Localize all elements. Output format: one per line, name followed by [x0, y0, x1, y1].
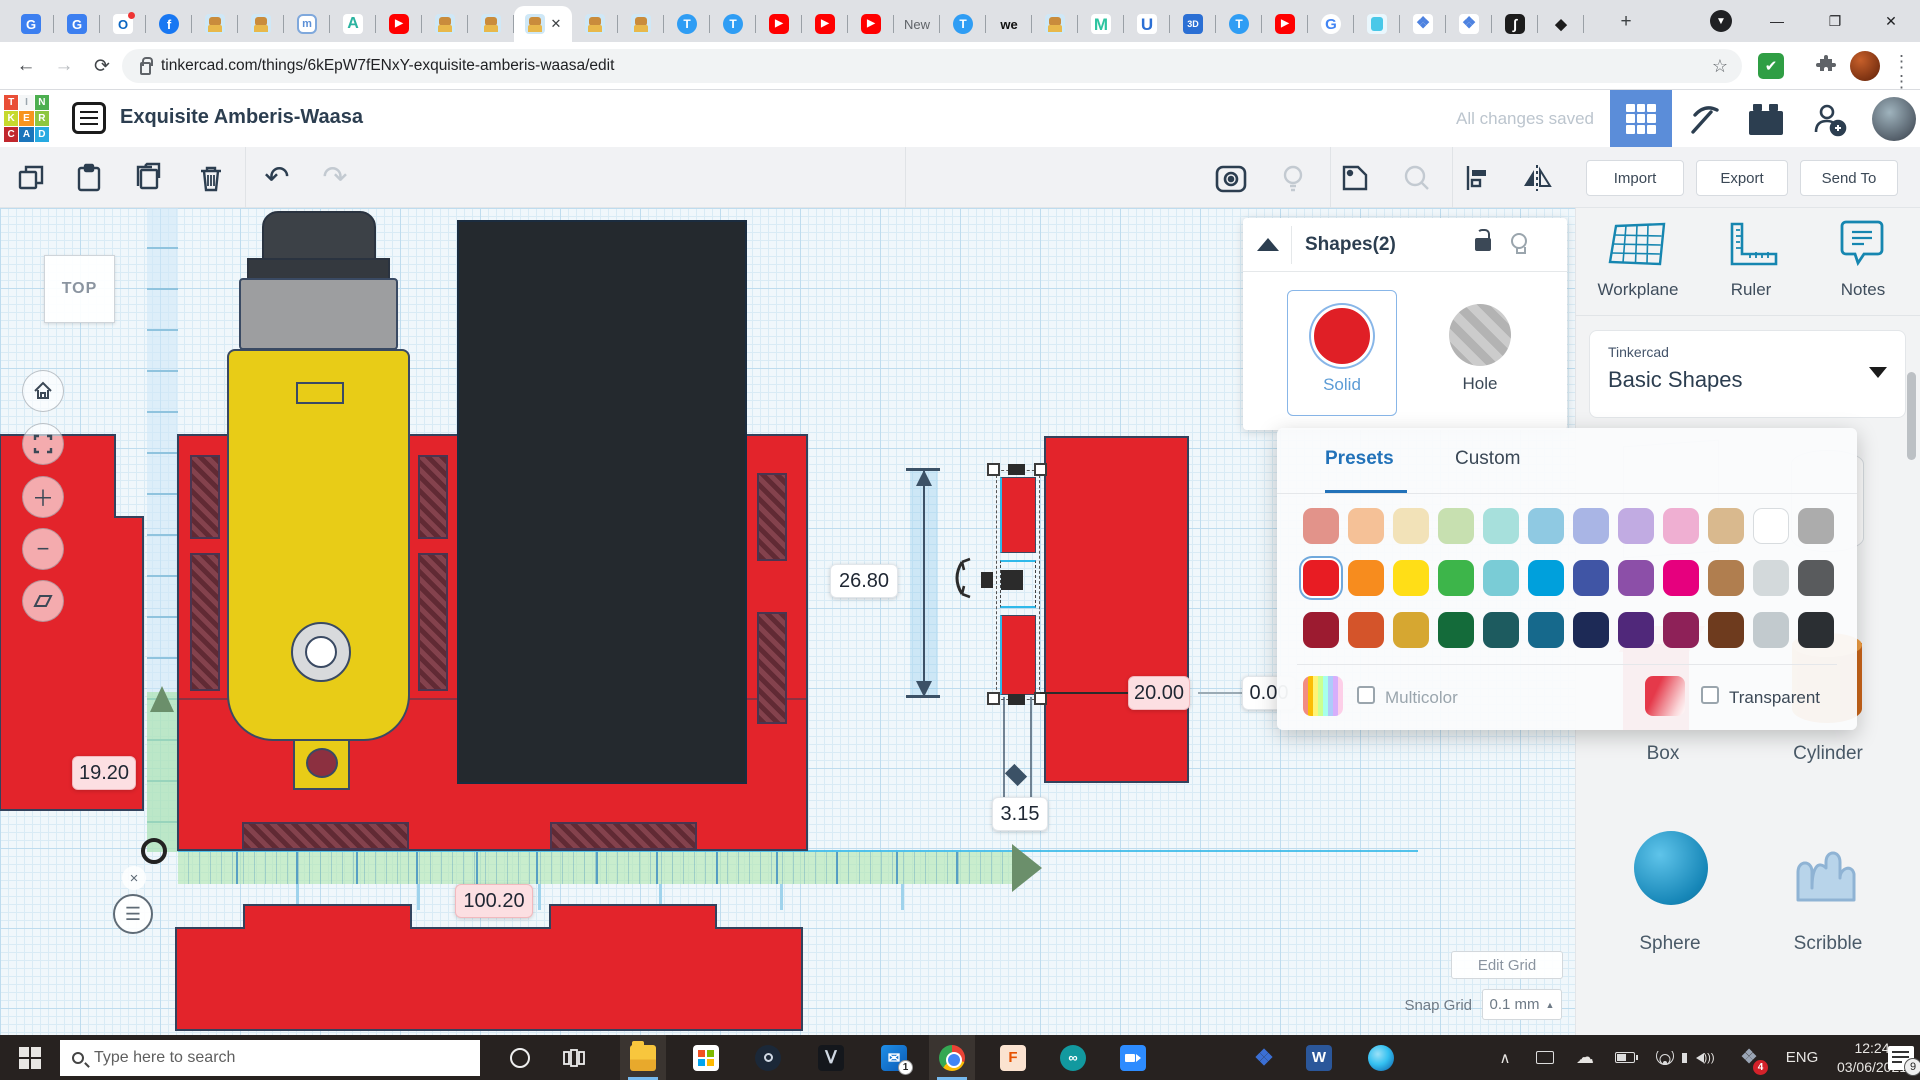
sendto-button[interactable]: Send To	[1800, 160, 1898, 196]
transparent-swatch[interactable]	[1645, 676, 1685, 716]
task-view-icon[interactable]	[552, 1035, 596, 1080]
word-icon[interactable]: W	[1296, 1035, 1342, 1080]
selection-handle-black[interactable]	[1008, 694, 1025, 705]
color-swatch[interactable]	[1573, 560, 1609, 596]
align-icon[interactable]	[1458, 159, 1496, 197]
lego-brick-icon[interactable]	[1735, 90, 1797, 147]
dim-cap	[906, 468, 940, 471]
windows-taskbar: Type here to search ᐯ ✉1 F ∞ ❖ W ∧ ☁ )))…	[0, 1035, 1920, 1080]
browser-tab[interactable]: G	[8, 6, 54, 42]
logo-letter: K	[4, 111, 18, 126]
window-minimize-button[interactable]: —	[1748, 0, 1806, 42]
view-cube[interactable]: TOP	[44, 255, 115, 323]
blocks-view-button[interactable]	[1610, 90, 1672, 147]
multicolor-swatch[interactable]	[1303, 676, 1343, 716]
language-indicator[interactable]: ENG	[1778, 1035, 1826, 1080]
zoom-in-icon[interactable]: ＋	[22, 476, 64, 518]
facebook-favicon: f	[159, 14, 179, 34]
browser-tab[interactable]: ∫	[1492, 6, 1538, 42]
dim-label-left[interactable]: 19.20	[72, 756, 136, 790]
u-favicon: U	[1137, 14, 1157, 34]
browser-tab[interactable]: m	[284, 6, 330, 42]
workplane-label[interactable]: Workplane	[1576, 280, 1700, 300]
mirror-icon[interactable]	[1518, 159, 1556, 197]
browser-tab[interactable]: A	[330, 6, 376, 42]
browser-tab[interactable]: M	[1078, 6, 1124, 42]
light-bulb-icon[interactable]	[1274, 159, 1312, 197]
edge-icon[interactable]	[1358, 1035, 1404, 1080]
url-text: tinkercad.com/things/6kEpW7fENxY-exquisi…	[161, 57, 614, 75]
video-app-icon[interactable]	[1110, 1035, 1156, 1080]
browser-tab[interactable]	[1032, 6, 1078, 42]
color-swatch[interactable]	[1348, 612, 1384, 648]
hide-icon[interactable]	[1511, 233, 1527, 249]
black-box-shape[interactable]	[457, 220, 747, 784]
browser-tab[interactable]	[572, 6, 618, 42]
color-swatch[interactable]	[1438, 612, 1474, 648]
browser-tab[interactable]	[192, 6, 238, 42]
vent-hole[interactable]	[550, 822, 697, 850]
notes-icon[interactable]	[1838, 218, 1886, 275]
search-icon	[72, 1052, 84, 1064]
browser-tab[interactable]	[468, 6, 514, 42]
window-close-button[interactable]: ✕	[1862, 0, 1920, 42]
ungroup-icon[interactable]	[1398, 159, 1436, 197]
browser-tab[interactable]: U	[1124, 6, 1170, 42]
tab-search-icon[interactable]: ▼	[1710, 10, 1732, 32]
color-swatch[interactable]	[1618, 508, 1654, 544]
cast-icon[interactable]	[1526, 1035, 1564, 1080]
bottle-ring-inner	[305, 636, 337, 668]
color-swatch[interactable]	[1708, 560, 1744, 596]
bookmark-star-icon[interactable]: ☆	[1712, 56, 1728, 77]
dim-line	[1040, 692, 1128, 694]
dim-line	[1198, 692, 1242, 694]
fusion360-icon[interactable]: F	[990, 1035, 1036, 1080]
browser-tab-strip: GGOfmA▶✕TT▶▶▶NewTweMU3DT▶G❖❖∫◆ + ▼ — ❐ ✕	[0, 0, 1920, 42]
transparent-checkbox[interactable]	[1701, 686, 1719, 704]
tinkercad-logo[interactable]: TINKERCAD	[4, 95, 49, 142]
notes-label[interactable]: Notes	[1808, 280, 1918, 300]
youtube-favicon: ▶	[389, 14, 409, 34]
extension-check-icon[interactable]: ✔	[1758, 53, 1784, 79]
home-view-icon[interactable]	[22, 370, 64, 412]
chrome-icon[interactable]	[929, 1035, 975, 1080]
selection-handle-black[interactable]	[1008, 464, 1025, 475]
import-button[interactable]: Import	[1586, 160, 1684, 196]
robot-favicon	[205, 14, 225, 34]
color-swatch[interactable]	[1393, 612, 1429, 648]
color-swatch[interactable]	[1348, 508, 1384, 544]
book-favicon: ❖	[1413, 14, 1433, 34]
color-picker-panel: Presets Custom Multicolor Transparent	[1277, 428, 1857, 730]
export-button[interactable]: Export	[1696, 160, 1788, 196]
solid-color-ball[interactable]	[1311, 305, 1373, 367]
gallery-box-label[interactable]: Box	[1593, 743, 1733, 765]
browser-tab[interactable]: 3D	[1170, 6, 1216, 42]
color-swatch[interactable]	[1663, 508, 1699, 544]
ruler-close-icon[interactable]: ×	[122, 866, 146, 890]
gallery-scribble-icon[interactable]	[1788, 838, 1868, 923]
ms-store-icon[interactable]	[683, 1035, 729, 1080]
vent-hole[interactable]	[757, 473, 787, 561]
snap-grid-dropdown[interactable]: 0.1 mm▲	[1482, 989, 1562, 1020]
ruler-menu-icon[interactable]: ☰	[113, 894, 153, 934]
zoom-out-icon[interactable]: −	[22, 528, 64, 570]
autodesk-favicon: A	[343, 14, 363, 34]
library-name: Basic Shapes	[1608, 367, 1743, 393]
translate-favicon: G	[67, 14, 87, 34]
hole-striped-ball[interactable]	[1449, 304, 1511, 366]
color-swatch[interactable]	[1393, 508, 1429, 544]
hole-material-card[interactable]: Hole	[1425, 290, 1535, 416]
browser-menu-icon[interactable]: ⋮⋮	[1893, 52, 1910, 92]
dim-label-bottom[interactable]: 100.20	[455, 884, 533, 918]
back-icon[interactable]: ←	[10, 50, 42, 82]
logo-letter: R	[35, 111, 49, 126]
user-avatar[interactable]	[1872, 97, 1916, 141]
translate-favicon: G	[21, 14, 41, 34]
hexm-favicon: m	[297, 14, 317, 34]
color-swatch[interactable]	[1483, 560, 1519, 596]
perspective-toggle-icon[interactable]	[22, 580, 64, 622]
dropbox-icon[interactable]: ❖4	[1728, 1035, 1770, 1080]
browser-tab[interactable]	[1354, 6, 1400, 42]
color-swatch[interactable]	[1708, 508, 1744, 544]
color-swatch[interactable]	[1708, 612, 1744, 648]
color-swatch[interactable]	[1753, 508, 1789, 544]
rotate-handle-icon[interactable]	[948, 552, 988, 609]
onedrive-cloud-icon[interactable]: ☁	[1566, 1035, 1604, 1080]
browser-tab[interactable]: ❖	[1400, 6, 1446, 42]
new-tab-button[interactable]: +	[1612, 8, 1640, 36]
edit-grid-button[interactable]: Edit Grid	[1451, 951, 1563, 979]
reload-icon[interactable]: ⟳	[86, 50, 118, 82]
color-swatch[interactable]	[1528, 508, 1564, 544]
multicolor-checkbox[interactable]	[1357, 686, 1375, 704]
color-swatch[interactable]	[1618, 612, 1654, 648]
logo-letter: A	[19, 127, 33, 142]
tinkercad-toolbar: ↶ ↷ Import Export Send To	[0, 147, 1920, 208]
fit-view-icon[interactable]	[22, 423, 64, 465]
dim-arrow-up	[916, 470, 932, 486]
bottle-neck[interactable]	[239, 278, 398, 350]
logo-letter: T	[4, 95, 18, 110]
logo-letter: E	[19, 111, 33, 126]
color-swatch[interactable]	[1528, 560, 1564, 596]
browser-address-bar: ← → ⟳ tinkercad.com/things/6kEpW7fENxY-e…	[0, 42, 1920, 90]
robot-favicon	[525, 14, 545, 34]
tray-expand-icon[interactable]: ∧	[1488, 1035, 1522, 1080]
browser-tab[interactable]: T	[1216, 6, 1262, 42]
color-swatch[interactable]	[1798, 612, 1834, 648]
steam-icon[interactable]	[745, 1035, 791, 1080]
youtube-favicon: ▶	[769, 14, 789, 34]
volume-icon[interactable]: )))	[1686, 1035, 1724, 1080]
menu-list-icon[interactable]	[72, 102, 106, 134]
m-favicon: M	[1091, 14, 1111, 34]
robotcyan-favicon	[1367, 14, 1387, 34]
logo-letter: N	[35, 95, 49, 110]
taskbar-search-input[interactable]: Type here to search	[60, 1040, 480, 1076]
forward-icon[interactable]: →	[48, 50, 80, 82]
ruler-label[interactable]: Ruler	[1696, 280, 1806, 300]
color-swatch[interactable]	[1438, 508, 1474, 544]
start-button[interactable]	[0, 1035, 60, 1080]
sidebar-scrollbar[interactable]	[1907, 372, 1916, 460]
browser-tab[interactable]: New	[894, 6, 940, 42]
browser-tab[interactable]: ▶	[802, 6, 848, 42]
browser-tab-active[interactable]: ✕	[514, 6, 572, 42]
youtube-favicon: ▶	[815, 14, 835, 34]
dim-line	[923, 470, 925, 697]
robot-favicon	[631, 14, 651, 34]
browser-tab[interactable]: O	[100, 6, 146, 42]
gallery-cylinder-label[interactable]: Cylinder	[1758, 743, 1898, 765]
unlock-icon[interactable]	[1475, 238, 1491, 251]
solid-label: Solid	[1288, 375, 1396, 395]
color-swatch[interactable]	[1753, 560, 1789, 596]
color-swatch[interactable]	[1753, 612, 1789, 648]
shapes-panel-title: Shapes(2)	[1305, 234, 1396, 256]
undo-icon[interactable]: ↶	[258, 159, 296, 197]
dev-tool-icon[interactable]: ❖	[1241, 1035, 1287, 1080]
inkscape-favicon: ◆	[1551, 14, 1571, 34]
selection-handle-black[interactable]	[1001, 570, 1023, 590]
book-favicon: ❖	[1459, 14, 1479, 34]
bottle-slot	[296, 382, 344, 404]
duplicate-icon[interactable]	[130, 159, 168, 197]
copy-icon[interactable]	[12, 159, 50, 197]
tinkercad-header: TINKERCAD Exquisite Amberis-Waasa All ch…	[0, 90, 1920, 147]
color-swatch[interactable]	[1393, 560, 1429, 596]
search-placeholder: Type here to search	[94, 1049, 235, 1067]
color-swatch[interactable]	[1483, 612, 1519, 648]
browser-tab[interactable]: G	[1308, 6, 1354, 42]
color-swatch[interactable]	[1303, 560, 1339, 596]
selection-handle[interactable]	[1034, 463, 1047, 476]
browser-tab[interactable]: we	[986, 6, 1032, 42]
chevron-down-icon	[1869, 367, 1887, 378]
dim-line	[1030, 697, 1032, 797]
dim-cap	[906, 695, 940, 698]
text-bold-favicon: we	[1000, 14, 1017, 34]
browser-tab[interactable]	[422, 6, 468, 42]
color-swatch[interactable]	[1348, 560, 1384, 596]
outlook-favicon: O	[113, 14, 133, 34]
color-swatch[interactable]	[1483, 508, 1519, 544]
browser-tab[interactable]: T	[710, 6, 756, 42]
vent-hole[interactable]	[190, 455, 220, 539]
file-explorer-icon[interactable]	[620, 1035, 666, 1080]
shapes-panel-header: Shapes(2)	[1243, 218, 1567, 272]
youtube-favicon: ▶	[861, 14, 881, 34]
color-swatch[interactable]	[1573, 612, 1609, 648]
browser-tab[interactable]: T	[940, 6, 986, 42]
gallery-sphere-label[interactable]: Sphere	[1600, 933, 1740, 955]
logo-letter: C	[4, 127, 18, 142]
robot-favicon	[585, 14, 605, 34]
window-restore-button[interactable]: ❐	[1806, 0, 1864, 42]
browser-tab[interactable]: ◆	[1538, 6, 1584, 42]
solid-material-card[interactable]: Solid	[1287, 290, 1397, 416]
battery-icon[interactable]	[1606, 1035, 1644, 1080]
notifications-icon[interactable]: 9	[1882, 1035, 1920, 1080]
robot-favicon	[1045, 14, 1065, 34]
color-swatch[interactable]	[1303, 612, 1339, 648]
logo-letter: D	[35, 127, 49, 142]
bottle-body[interactable]	[227, 349, 410, 741]
minecraft-pickaxe-icon[interactable]	[1672, 90, 1734, 147]
threed-favicon: 3D	[1183, 14, 1203, 34]
shapes-inspector-panel: Shapes(2) Solid Hole	[1243, 218, 1567, 430]
logo-letter: I	[19, 95, 33, 110]
lock-icon	[140, 62, 151, 75]
robot-favicon	[435, 14, 455, 34]
browser-tab[interactable]: G	[54, 6, 100, 42]
browser-profile-avatar[interactable]	[1850, 51, 1880, 81]
bottle-tab-hole	[306, 748, 338, 778]
predator-icon[interactable]: ᐯ	[808, 1035, 854, 1080]
transparent-label: Transparent	[1729, 688, 1820, 708]
save-status: All changes saved	[1420, 109, 1594, 129]
group-icon[interactable]	[1336, 159, 1374, 197]
selection-handle[interactable]	[987, 463, 1000, 476]
extensions-puzzle-icon[interactable]	[1815, 55, 1837, 77]
color-swatch[interactable]	[1798, 508, 1834, 544]
dim-label-height[interactable]: 26.80	[830, 564, 898, 598]
dim-label-gap[interactable]: 3.15	[992, 797, 1048, 831]
tab-custom[interactable]: Custom	[1455, 448, 1520, 470]
screen: GGOfmA▶✕TT▶▶▶NewTweMU3DT▶G❖❖∫◆ + ▼ — ❐ ✕…	[0, 0, 1920, 1080]
browser-tab[interactable]: T	[664, 6, 710, 42]
tinkercad-favicon: T	[953, 14, 973, 34]
robot-favicon	[251, 14, 271, 34]
browser-tab[interactable]: ▶	[756, 6, 802, 42]
bottle-cap-top[interactable]	[262, 211, 376, 264]
browser-tab[interactable]: ▶	[848, 6, 894, 42]
color-swatch[interactable]	[1663, 612, 1699, 648]
google-favicon: G	[1321, 14, 1341, 34]
wifi-icon[interactable]	[1646, 1035, 1684, 1080]
browser-tab[interactable]: ▶	[376, 6, 422, 42]
browser-tab[interactable]: ▶	[1262, 6, 1308, 42]
multicolor-label: Multicolor	[1385, 688, 1458, 708]
tinkercad-favicon: T	[723, 14, 743, 34]
tab-close-icon[interactable]: ✕	[551, 16, 562, 32]
gallery-scribble-label[interactable]: Scribble	[1758, 933, 1898, 955]
library-dropdown[interactable]: Tinkercad Basic Shapes	[1589, 330, 1906, 418]
mail-icon[interactable]: ✉1	[871, 1035, 917, 1080]
tinkercad-favicon: T	[677, 14, 697, 34]
vent-hole[interactable]	[418, 553, 448, 691]
vent-hole[interactable]	[418, 455, 448, 539]
browser-tab[interactable]: f	[146, 6, 192, 42]
color-swatch[interactable]	[1438, 560, 1474, 596]
cortana-icon[interactable]	[498, 1035, 542, 1080]
url-input[interactable]: tinkercad.com/things/6kEpW7fENxY-exquisi…	[122, 49, 1742, 83]
integral-favicon: ∫	[1505, 14, 1525, 34]
text-favicon: New	[904, 14, 930, 34]
library-brand: Tinkercad	[1608, 344, 1669, 360]
vent-hole[interactable]	[190, 553, 220, 691]
hole-label: Hole	[1425, 374, 1535, 394]
ruler-anchor[interactable]	[141, 838, 167, 864]
paste-icon[interactable]	[70, 159, 108, 197]
ruler-tool-icon[interactable]	[1724, 220, 1780, 275]
selection-handle[interactable]	[987, 692, 1000, 705]
invite-person-icon[interactable]	[1798, 90, 1860, 147]
browser-tab[interactable]	[618, 6, 664, 42]
browser-tab[interactable]	[238, 6, 284, 42]
show-all-icon[interactable]	[1212, 159, 1250, 197]
color-swatch[interactable]	[1303, 508, 1339, 544]
workplane-icon[interactable]	[1606, 220, 1670, 275]
dim-label-width[interactable]: 20.00	[1128, 676, 1190, 710]
robot-favicon	[481, 14, 501, 34]
color-swatch[interactable]	[1618, 560, 1654, 596]
arduino-icon[interactable]: ∞	[1050, 1035, 1096, 1080]
color-swatch[interactable]	[1663, 560, 1699, 596]
tinkercad-favicon: T	[1229, 14, 1249, 34]
bottle-cap-flange[interactable]	[247, 258, 390, 280]
gallery-sphere-icon[interactable]	[1634, 831, 1708, 905]
snap-grid-label: Snap Grid	[1360, 997, 1472, 1014]
browser-tab[interactable]: ❖	[1446, 6, 1492, 42]
design-title[interactable]: Exquisite Amberis-Waasa	[120, 106, 363, 129]
collapse-icon[interactable]	[1257, 238, 1279, 251]
vent-hole[interactable]	[242, 822, 409, 850]
color-swatch[interactable]	[1573, 508, 1609, 544]
tab-presets[interactable]: Presets	[1325, 448, 1394, 470]
color-swatch[interactable]	[1798, 560, 1834, 596]
youtube-favicon: ▶	[1275, 14, 1295, 34]
color-swatch[interactable]	[1528, 612, 1564, 648]
delete-icon[interactable]	[192, 159, 230, 197]
redo-icon[interactable]: ↷	[316, 159, 354, 197]
vent-hole[interactable]	[757, 612, 787, 724]
